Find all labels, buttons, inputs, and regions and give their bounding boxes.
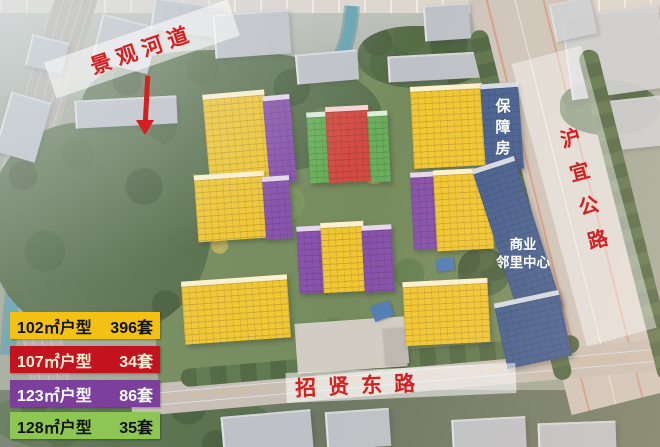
- legend-type: 102㎡户型: [17, 314, 92, 338]
- tower-yellow-102type: [181, 274, 291, 344]
- tower-purple-wing: [361, 224, 394, 292]
- city-building-south: [221, 409, 314, 447]
- aerial-site-plan: 景观河道 沪宜公路 招贤东路 保障房 商业 邻里中心 102㎡户型 396套 1…: [0, 0, 660, 447]
- tower-yellow-102type: [410, 83, 486, 169]
- tower-yellow-102type: [402, 278, 490, 346]
- city-building: [387, 52, 482, 83]
- legend-item-102: 102㎡户型 396套: [10, 312, 160, 339]
- commercial-center-label-line2: 邻里中心: [486, 254, 560, 272]
- legend-type: 123㎡户型: [17, 382, 92, 406]
- tower-red-center: [325, 105, 372, 183]
- legend-count: 86套: [119, 382, 153, 406]
- tower-green-wing: [367, 111, 391, 183]
- commercial-center-label: 商业 邻里中心: [486, 236, 560, 272]
- tower-purple-wing: [262, 175, 293, 240]
- affordable-housing-label: 保障房: [489, 92, 515, 166]
- commercial-center-label-line1: 商业: [486, 236, 560, 254]
- legend-item-128: 128㎡户型 35套: [10, 412, 160, 439]
- arrow-stem: [143, 76, 151, 124]
- city-building-south: [538, 421, 617, 447]
- legend-count: 396套: [110, 314, 153, 338]
- legend-item-123: 123㎡户型 86套: [10, 380, 160, 407]
- unit-type-legend: 102㎡户型 396套 107㎡户型 34套 123㎡户型 86套 128㎡户型…: [10, 312, 162, 442]
- sports-court: [435, 257, 455, 272]
- city-building: [423, 2, 471, 41]
- legend-count: 35套: [119, 414, 153, 438]
- riverside-warehouse: [74, 95, 177, 128]
- tower-yellow-102type: [202, 89, 272, 183]
- tower-yellow-102type: [320, 221, 367, 293]
- city-building: [295, 49, 359, 84]
- legend-type: 107㎡户型: [17, 348, 92, 372]
- city-building-south: [451, 416, 527, 447]
- arrow-head-icon: [136, 120, 154, 135]
- legend-type: 128㎡户型: [17, 414, 92, 438]
- legend-count: 34套: [119, 348, 153, 372]
- tower-yellow-102type: [194, 171, 269, 243]
- river-arrow: [133, 76, 159, 140]
- east-road-label: 招贤东路: [285, 367, 427, 403]
- commercial-block-building: [494, 290, 572, 369]
- highway-label: 沪宜公路: [552, 125, 616, 268]
- legend-item-107: 107㎡户型 34套: [10, 346, 160, 373]
- city-building-south: [325, 408, 391, 447]
